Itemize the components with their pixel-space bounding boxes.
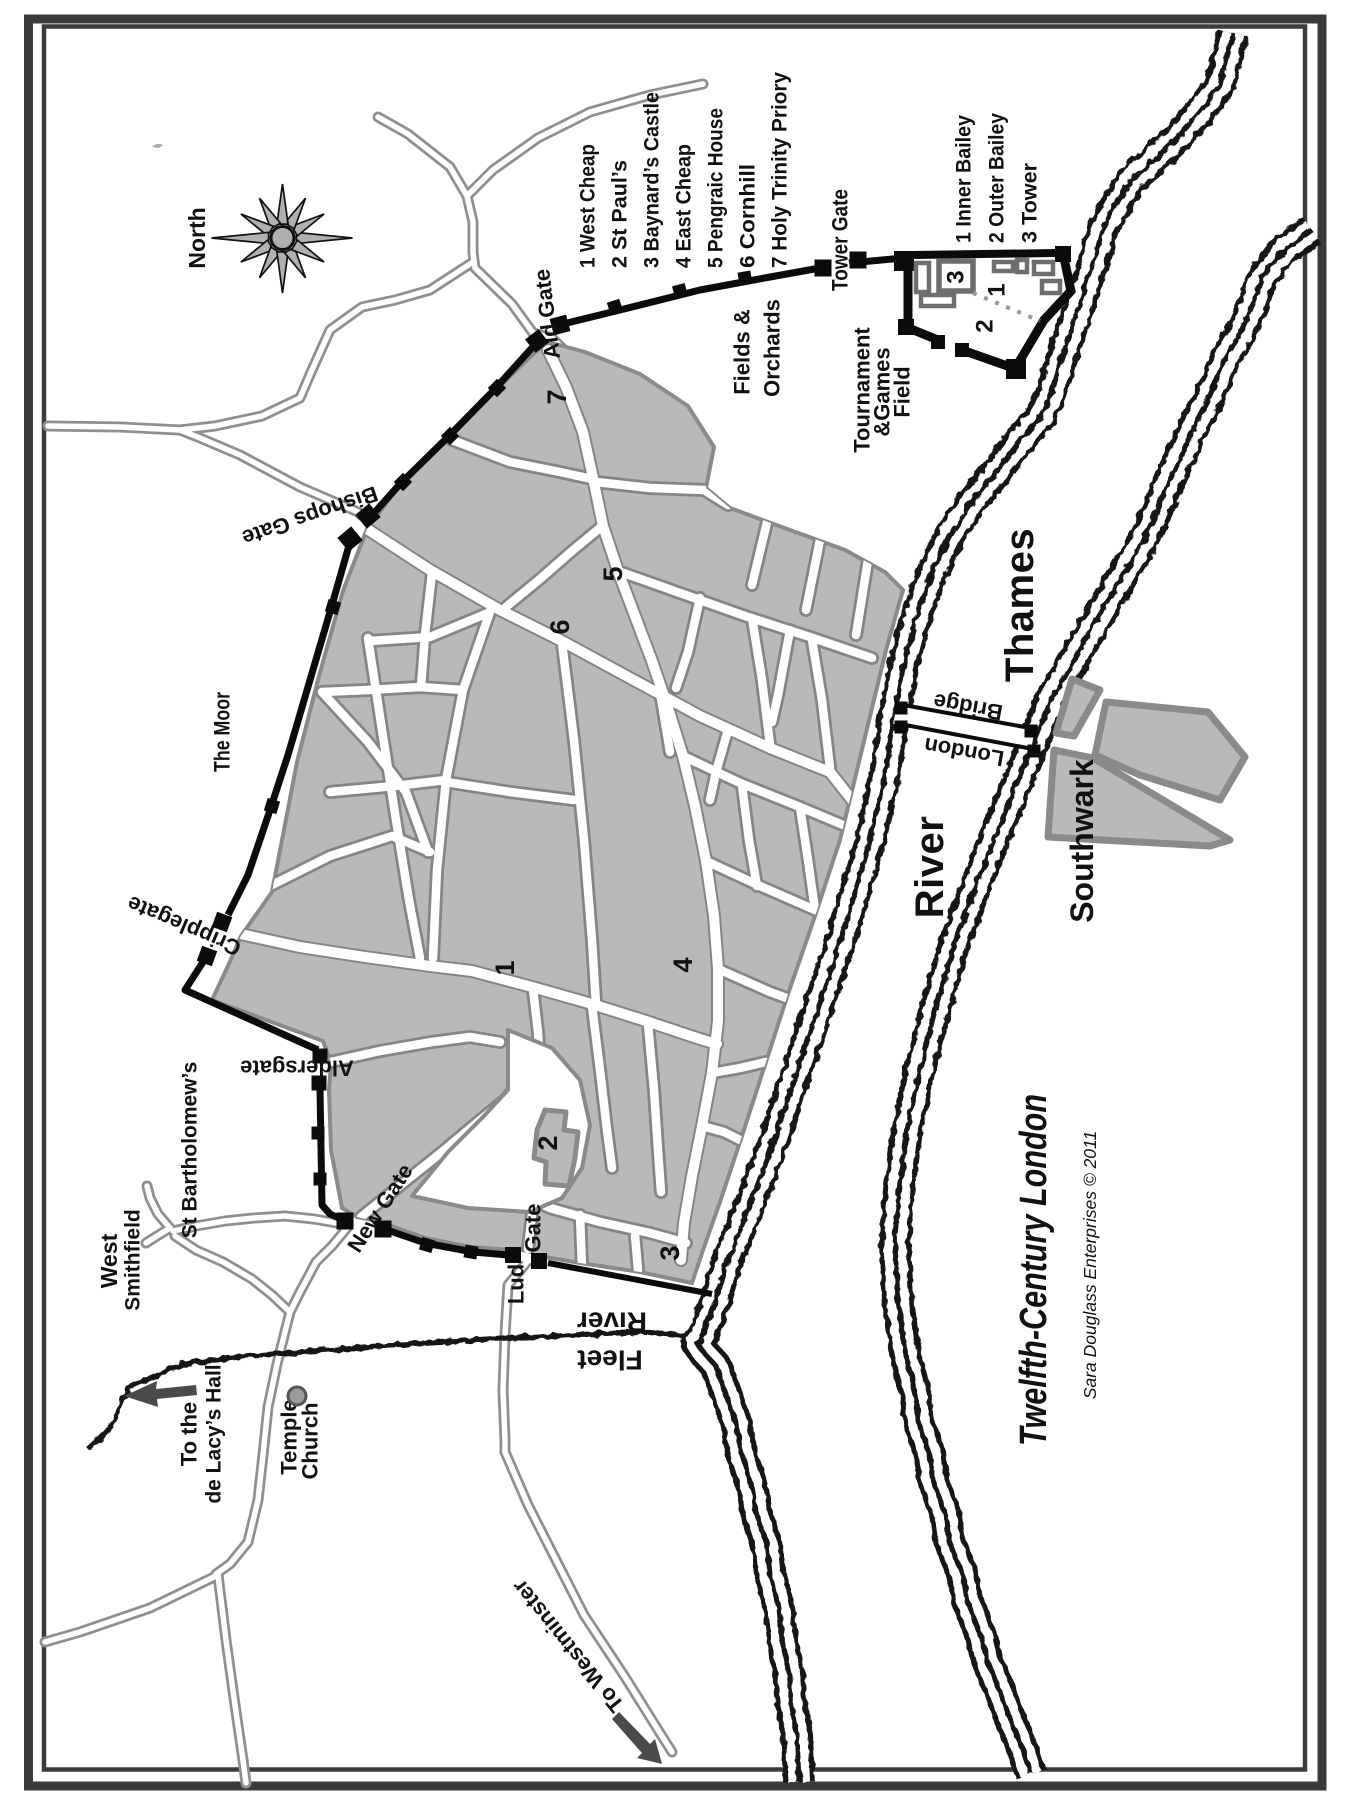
svg-text:Twelfth-Century London: Twelfth-Century London bbox=[1013, 1094, 1055, 1446]
svg-text:4 East Cheap: 4 East Cheap bbox=[673, 144, 696, 268]
svg-text:7 Holy Trinity Priory: 7 Holy Trinity Priory bbox=[769, 72, 792, 268]
svg-text:2: 2 bbox=[972, 319, 999, 332]
svg-text:Aldersgate: Aldersgate bbox=[240, 1056, 354, 1081]
svg-text:6: 6 bbox=[545, 619, 575, 634]
svg-text:Church: Church bbox=[298, 1403, 323, 1480]
svg-text:St Bartholomew’s: St Bartholomew’s bbox=[179, 1062, 202, 1239]
svg-text:Fleet: Fleet bbox=[577, 1345, 642, 1376]
svg-text:Thames: Thames bbox=[998, 528, 1042, 682]
svg-text:Lud: Lud bbox=[504, 1264, 529, 1304]
svg-text:1 West Cheap: 1 West Cheap bbox=[577, 144, 600, 268]
svg-text:River: River bbox=[908, 816, 952, 919]
svg-text:North: North bbox=[184, 207, 210, 268]
svg-text:The Moor: The Moor bbox=[210, 692, 235, 772]
svg-text:West: West bbox=[96, 1233, 122, 1288]
svg-text:Field: Field bbox=[890, 366, 915, 417]
svg-text:2 Outer Bailey: 2 Outer Bailey bbox=[986, 113, 1009, 243]
svg-text:5: 5 bbox=[598, 566, 628, 581]
svg-text:5 Pengraic House: 5 Pengraic House bbox=[705, 108, 728, 268]
svg-text:Fields &: Fields & bbox=[730, 309, 755, 395]
svg-text:Gate: Gate bbox=[521, 1204, 546, 1253]
svg-text:Sara Douglass Enterprises © 20: Sara Douglass Enterprises © 2011 bbox=[1080, 1131, 1100, 1399]
svg-text:3: 3 bbox=[943, 270, 970, 283]
svg-text:2: 2 bbox=[533, 1135, 563, 1150]
svg-text:4: 4 bbox=[668, 957, 698, 972]
svg-text:1: 1 bbox=[984, 283, 1011, 296]
svg-text:3 Tower: 3 Tower bbox=[1019, 163, 1042, 243]
svg-text:2 St Paul’s: 2 St Paul’s bbox=[609, 160, 632, 268]
svg-text:1 Inner Bailey: 1 Inner Bailey bbox=[953, 115, 976, 243]
svg-text:Tower Gate: Tower Gate bbox=[828, 189, 853, 291]
svg-text:To the: To the bbox=[177, 1402, 202, 1466]
svg-text:3: 3 bbox=[655, 1245, 685, 1260]
svg-text:6 Cornhill: 6 Cornhill bbox=[737, 164, 760, 268]
svg-text:Orchards: Orchards bbox=[760, 299, 785, 397]
svg-text:de Lacy’s Hall: de Lacy’s Hall bbox=[203, 1364, 226, 1503]
svg-text:7: 7 bbox=[542, 389, 572, 404]
svg-text:3 Baynard’s Castle: 3 Baynard’s Castle bbox=[641, 92, 664, 268]
svg-text:1: 1 bbox=[490, 960, 520, 975]
svg-text:Smithfield: Smithfield bbox=[122, 1209, 145, 1311]
svg-text:River: River bbox=[577, 1307, 647, 1338]
svg-text:Southwark: Southwark bbox=[1064, 759, 1100, 923]
